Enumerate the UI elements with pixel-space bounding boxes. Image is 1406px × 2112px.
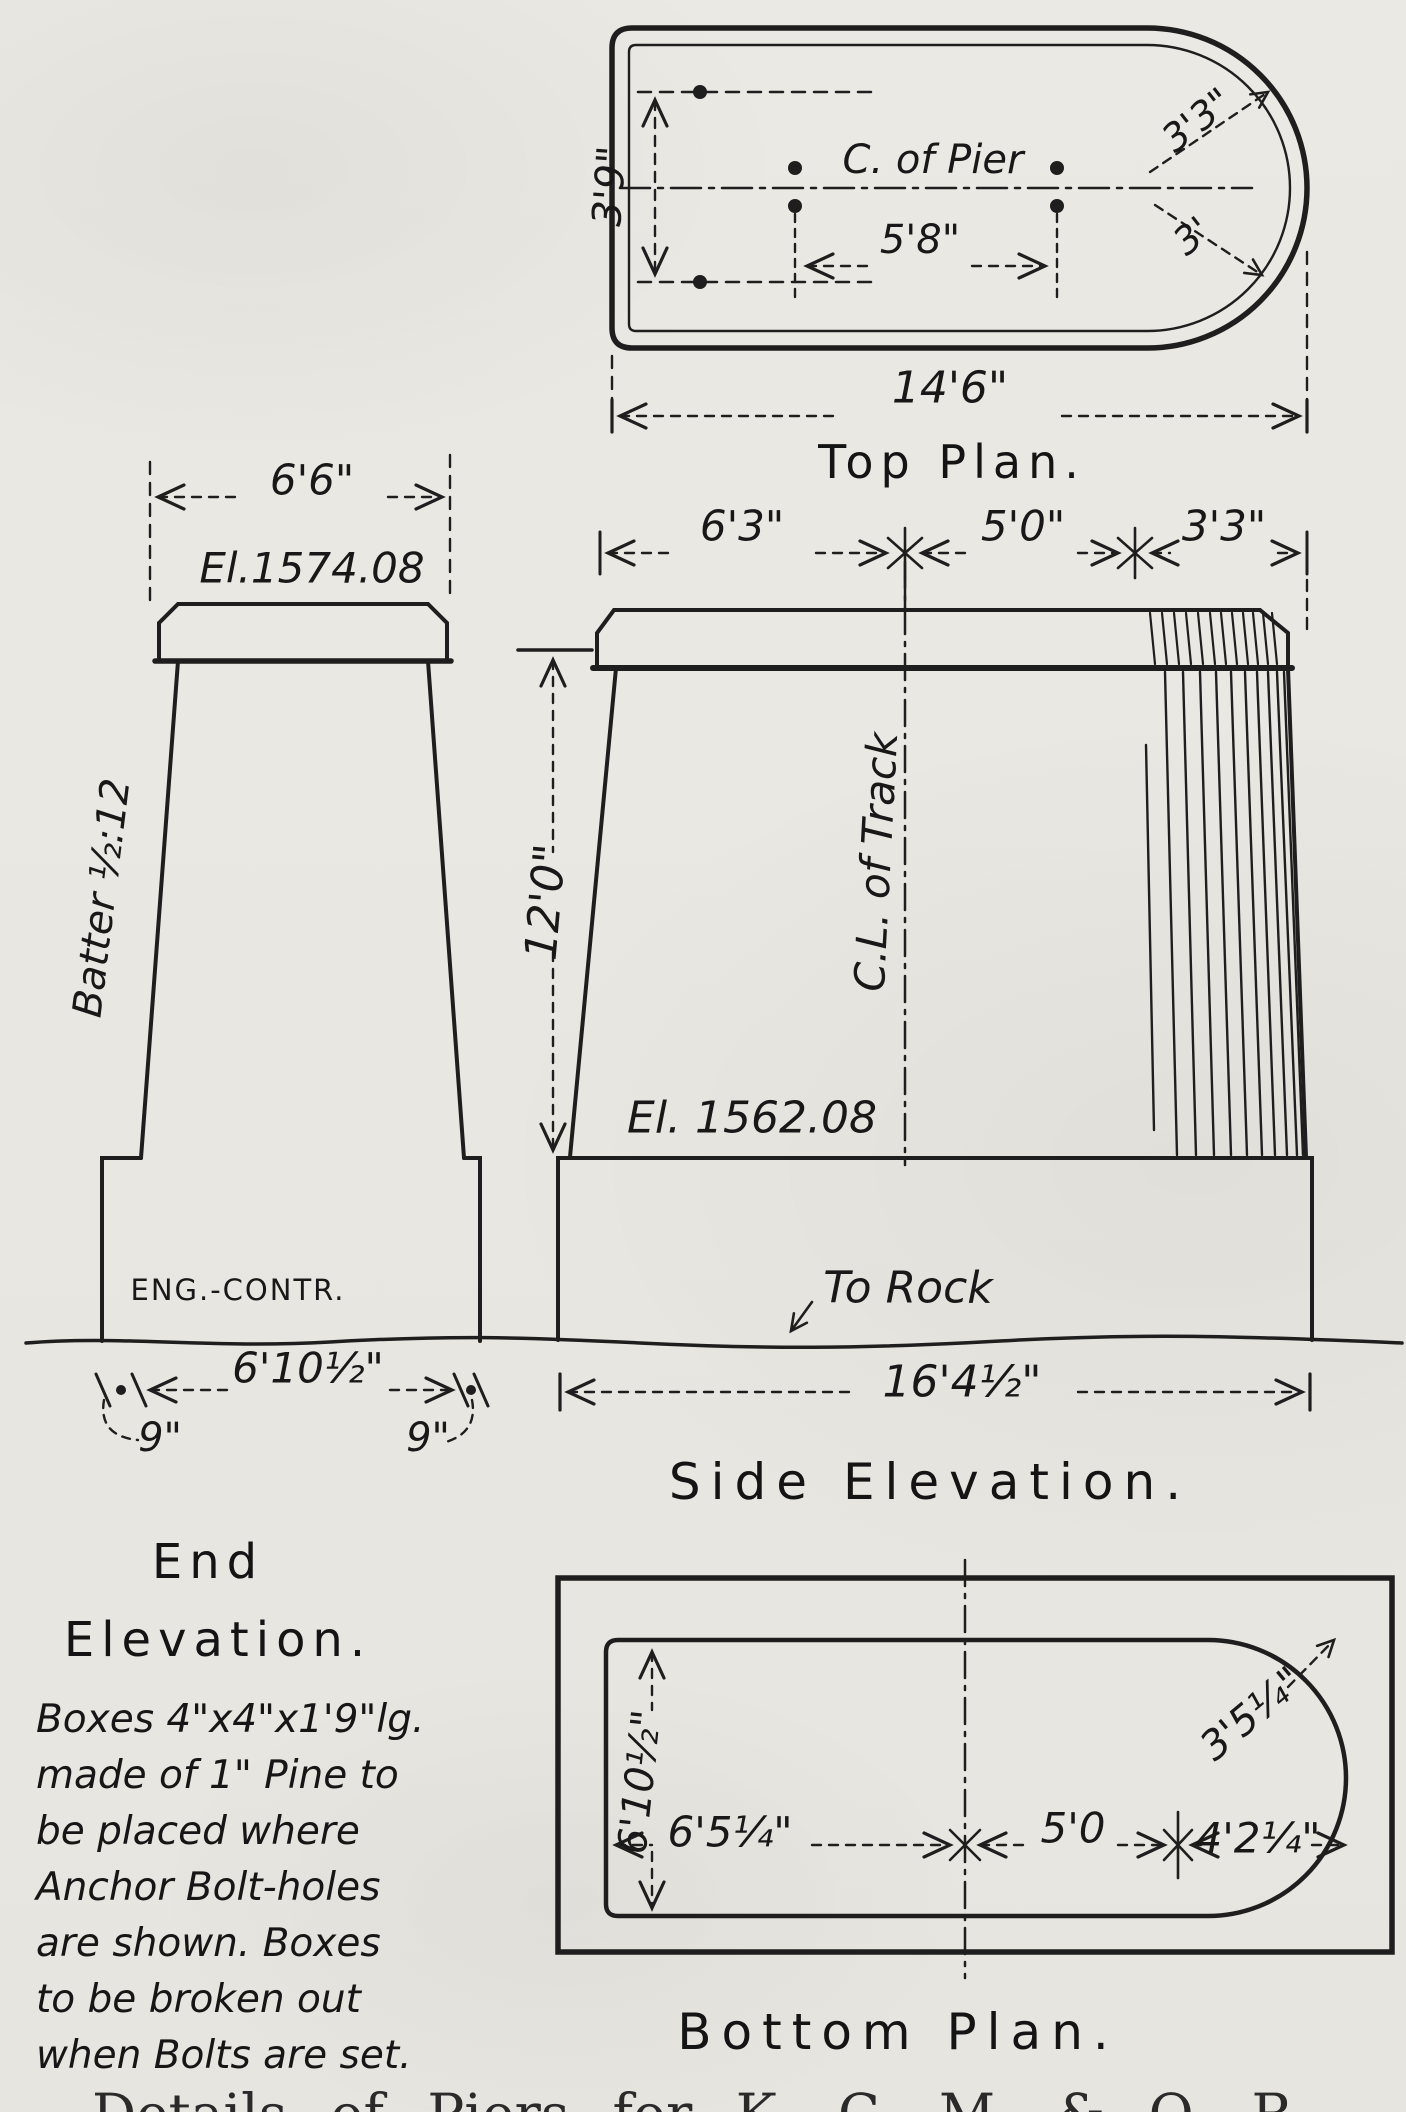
top-plan-bolt-spacing-dim: 5'8" — [880, 217, 960, 263]
end-elevation-offset-left-dim: 9" — [138, 1415, 182, 1461]
note-line: Anchor Bolt-holes — [36, 1860, 424, 1916]
note-line: made of 1" Pine to — [36, 1748, 424, 1804]
top-plan-overall-length-dim: 14'6" — [892, 363, 1008, 414]
scanned-drawing-sheet: C. of Pier 5'8" 3'9" 3'3" 3' 14'6" Top P… — [0, 0, 1406, 2112]
side-elevation-cap-hatching — [1150, 613, 1277, 664]
end-elevation-base-width-dim: 6'10½" — [232, 1344, 384, 1393]
end-elevation-title-line1: End — [152, 1534, 264, 1590]
note-line: are shown. Boxes — [36, 1916, 424, 1972]
note-line: be placed where — [36, 1804, 424, 1860]
end-elevation-title-line2: Elevation. — [64, 1612, 372, 1668]
side-elevation-top-left-dim: 6'3" — [700, 502, 784, 551]
end-elevation-top-elevation-label: El.1574.08 — [199, 544, 424, 593]
end-elevation-footing-label: ENG.-CONTR. — [131, 1273, 346, 1307]
side-elevation-footing-width-dim: 16'4½" — [883, 1357, 1042, 1408]
side-elevation-top-middle-dim: 5'0" — [981, 502, 1065, 551]
side-elevation-bottom-elevation-label: El. 1562.08 — [627, 1093, 877, 1144]
side-elevation-top-right-dim: 3'3" — [1182, 502, 1266, 551]
note-line: when Bolts are set. — [36, 2028, 424, 2084]
top-plan-title: Top Plan. — [818, 435, 1086, 489]
note-line: Boxes 4"x4"x1'9"lg. — [36, 1692, 424, 1748]
end-elevation-outline — [102, 604, 480, 1341]
top-plan-row-spacing-dim: 3'9" — [584, 144, 635, 227]
bottom-plan-outline — [558, 1578, 1392, 1952]
side-elevation-height-dim: 12'0" — [516, 842, 577, 962]
bottom-plan-right-dim: 4'2¼" — [1195, 1814, 1320, 1863]
side-elevation-to-rock-label: To Rock — [823, 1263, 993, 1314]
anchor-bolt-box-note: Boxes 4"x4"x1'9"lg. made of 1" Pine to b… — [36, 1692, 424, 2084]
top-plan-centerline-label: C. of Pier — [843, 137, 1024, 183]
bottom-plan-left-dim: 6'5¼" — [667, 1808, 792, 1857]
side-elevation-title: Side Elevation. — [669, 1453, 1191, 1511]
end-elevation-top-width-dim: 6'6" — [270, 456, 354, 505]
side-elevation-nose-contours — [1146, 672, 1303, 1155]
bottom-plan-dimensions — [616, 1640, 1344, 1908]
bottom-plan-title: Bottom Plan. — [677, 2003, 1119, 2061]
figure-caption: Details of Piers for K. C. M. & O. R — [92, 2082, 1293, 2112]
note-line: to be broken out — [36, 1972, 424, 2028]
bottom-plan-middle-dim: 5'0 — [1041, 1804, 1106, 1853]
side-elevation-outline — [558, 610, 1312, 1340]
end-elevation-offset-right-dim: 9" — [406, 1415, 450, 1461]
